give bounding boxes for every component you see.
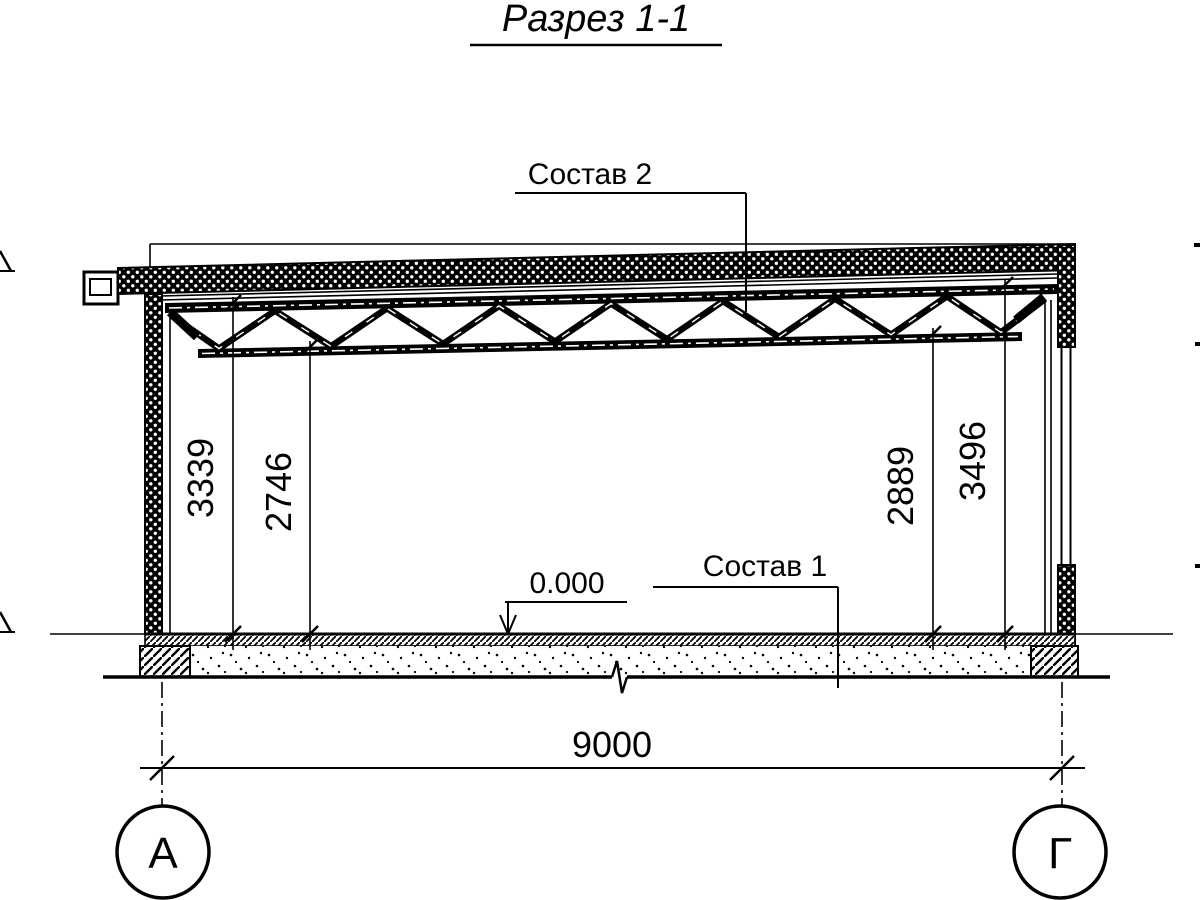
- elevation-mark-bottom-left-icon: [0, 612, 15, 632]
- dim-left-inner-value: 2746: [258, 452, 299, 532]
- foundation-right: [1031, 646, 1078, 677]
- foundation-left: [140, 646, 190, 677]
- level-arrow-icon: [500, 615, 508, 634]
- section-drawing: Разрез 1-1: [0, 0, 1200, 900]
- left-wall: [145, 294, 170, 634]
- axis-right: Г: [1014, 682, 1106, 898]
- truss-bearing-right: [1016, 297, 1044, 320]
- dimension-right-inner: 2889: [880, 326, 941, 650]
- roof-composition-label: Состав 2: [528, 158, 652, 191]
- elevation-marks-right-edge: [1194, 243, 1200, 568]
- dimension-span: 9000: [140, 724, 1085, 780]
- elevation-mark-top-left-icon: [0, 251, 15, 271]
- left-wall-panel: [145, 294, 162, 634]
- axis-letter-right: Г: [1048, 829, 1072, 878]
- dimension-left-inner: 2746: [258, 339, 318, 650]
- dim-right-inner-value: 2889: [880, 446, 921, 526]
- dim-span-value: 9000: [572, 724, 652, 765]
- axis-left: А: [117, 682, 209, 898]
- page-title: Разрез 1-1: [502, 0, 690, 40]
- floor-level-label: 0.000: [529, 567, 604, 600]
- subbase-layer: [190, 646, 1031, 677]
- dim-right-outer-value: 3496: [952, 421, 993, 501]
- dimension-left-outer: 3339: [180, 295, 241, 650]
- roof-truss: [165, 284, 1058, 358]
- drawing-header: Разрез 1-1: [470, 0, 722, 45]
- elevation-mark-right-window-sill-icon: [1195, 564, 1200, 568]
- right-wall-window: [1058, 347, 1075, 565]
- section-drawing-canvas: Разрез 1-1: [0, 0, 1200, 900]
- elevation-mark-right-window-head-icon: [1195, 342, 1200, 346]
- axis-letter-left: А: [148, 829, 178, 878]
- roof-panel-hatch: [118, 244, 1075, 294]
- right-wall-upper-panel: [1058, 245, 1075, 347]
- floor-screed-strip: [145, 634, 1075, 646]
- floor-composition-label: Состав 1: [703, 550, 827, 583]
- dim-left-outer-value: 3339: [180, 438, 221, 518]
- level-mark-zero: 0.000: [500, 567, 627, 634]
- right-wall: [1045, 245, 1075, 648]
- truss-bearing-left: [170, 312, 197, 337]
- elevation-mark-right-roof-icon: [1194, 243, 1200, 247]
